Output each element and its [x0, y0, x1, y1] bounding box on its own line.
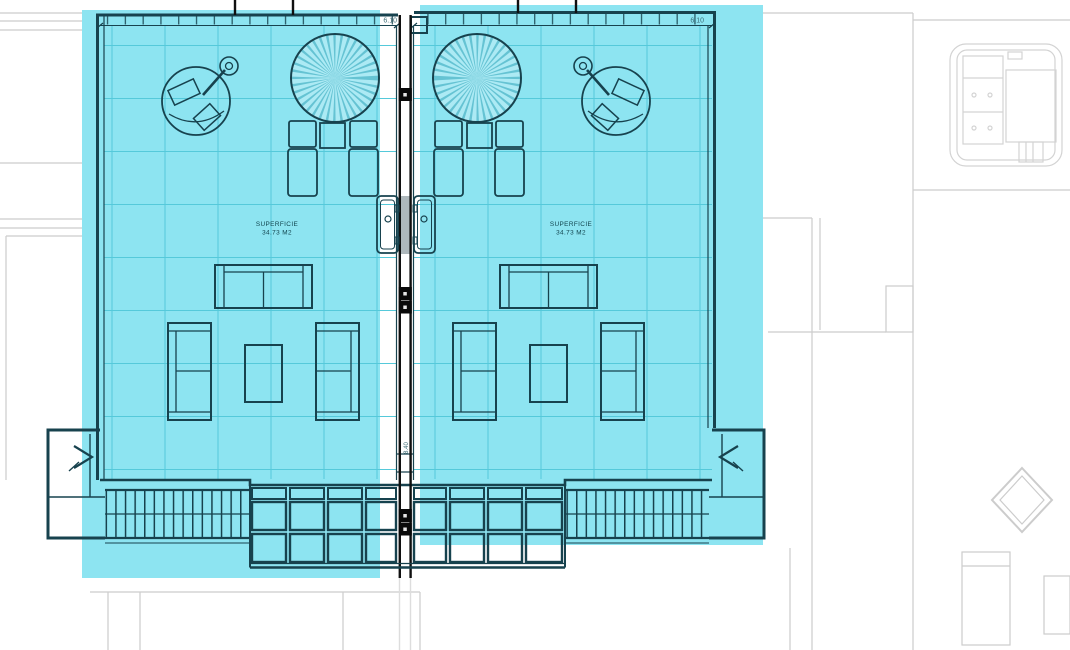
diamond-marker-icon — [992, 468, 1052, 532]
dimension-label-left: 6.10 — [383, 18, 397, 25]
area-value-left: 34.73 M2 — [262, 230, 292, 237]
center-wall — [399, 15, 412, 578]
parasol-icon — [291, 34, 379, 122]
area-label-left: SUPERFICIE — [256, 221, 298, 228]
floor-plan-canvas: SUPERFICIE 34.73 M2 SUPERFICIE 34.73 M2 … — [0, 0, 1070, 650]
dimension-label-center: 8.40 — [404, 442, 410, 454]
floor-plan: SUPERFICIE 34.73 M2 SUPERFICIE 34.73 M2 … — [0, 0, 1070, 650]
jacuzzi-icon — [950, 44, 1062, 166]
dimension-label-right: 6.10 — [690, 18, 704, 25]
area-value-right: 34.73 M2 — [556, 230, 586, 237]
area-label-right: SUPERFICIE — [550, 221, 592, 228]
